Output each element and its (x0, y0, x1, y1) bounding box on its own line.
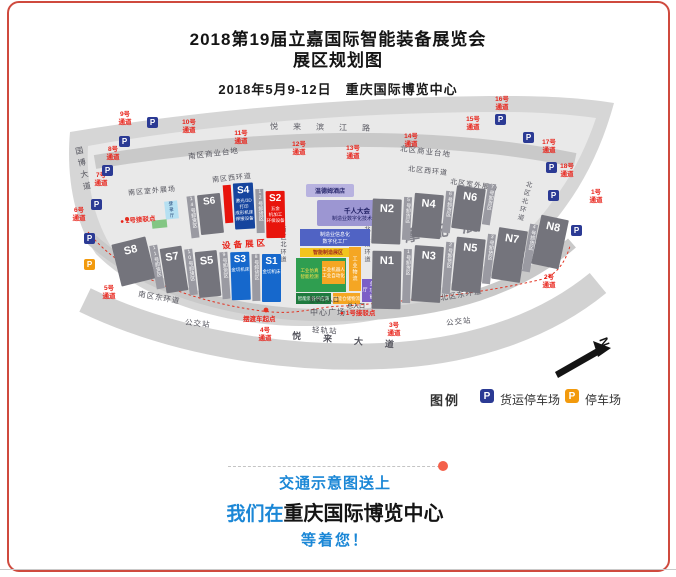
gate-17-label: 17号 通道 (536, 139, 562, 155)
hall-s1: S1金切机床 (262, 254, 281, 302)
gate-5-label: 5号 通道 (96, 285, 122, 301)
gate-2-label: 2号 通道 (536, 274, 562, 290)
central-info-bar: 制造业信息化 数字化工厂 (300, 229, 370, 246)
gate-10-label: 10号 通道 (176, 119, 202, 135)
freight-parking-icon: P (548, 190, 559, 201)
freight-parking-icon: P (523, 132, 534, 143)
wyndham-hotel: 温德姆酒店 (306, 184, 354, 197)
freight-parking-icon: P (546, 162, 557, 173)
light-rail-station-label: 轻轨站 (312, 324, 338, 336)
gate-9-label: 9号 通道 (112, 111, 138, 127)
gate-15-label: 15号 通道 (460, 116, 486, 132)
industry-simulation-box: 工业仿真 智能检测 (299, 263, 320, 284)
hall-n5: N5 (451, 237, 485, 294)
hall-n6: N6 (451, 185, 486, 232)
footer-line2-black: 重庆国际博览中心 (284, 503, 444, 525)
freight-parking-icon: P (91, 199, 102, 210)
smart-zone-band: 智能制造展区 (300, 248, 356, 257)
registration-hall-entrance-label: 登录厅入口 (309, 295, 339, 304)
gate-3-label: 3号 通道 (381, 322, 407, 338)
gate-13-label: 13号 通道 (340, 145, 366, 161)
freight-parking-icon: P (102, 165, 113, 176)
gate-18-label: 18号 通道 (554, 163, 580, 179)
footer-line2: 我们在重庆国际博览中心 (0, 497, 670, 526)
gate-11-label: 11号 通道 (228, 130, 254, 146)
hall-n1: N1 (371, 251, 401, 309)
gate-8-label: 8号 通道 (100, 146, 126, 162)
gate-4-label: 4号 通道 (252, 327, 278, 343)
freight-parking-icon: P (119, 136, 130, 147)
south-registration-hall: 登录厅 (164, 200, 179, 219)
gate-12-label: 12号 通道 (286, 141, 312, 157)
hall-s5: S5 (195, 250, 222, 298)
hall-n2: N2 (371, 199, 402, 245)
hall-n3: N3 (411, 245, 444, 303)
hall-s4: S4激光/3D打印 成形机床 焊接设备 (233, 183, 255, 230)
hall-s3: S3金切机床 (230, 252, 251, 301)
freight-parking-icon: P (495, 114, 506, 125)
footer-line2-blue: 我们在 (226, 504, 283, 525)
footer-line3: 等着您！ (0, 529, 670, 550)
road-yuelai-binjiang: 悦来滨江路 (270, 121, 385, 134)
legend-parking-label: 停车场 (585, 391, 621, 408)
legend-freight-parking-label: 货运停车场 (500, 391, 560, 408)
freight-parking-icon: P (147, 117, 158, 128)
parking-legend-icon: P (565, 389, 579, 403)
compass-arrow-shaft (555, 348, 600, 378)
footer-line1: 交通示意图送上 (0, 472, 670, 493)
shuttle-start-dot (264, 308, 269, 313)
legend-title: 图例 (430, 390, 460, 409)
footer-dashed-divider (228, 466, 440, 467)
shuttle-start-label: 摆渡车起点 (243, 313, 276, 323)
gate-6-label: 6号 通道 (66, 207, 92, 223)
gate-1-label: 1号 通道 (583, 189, 609, 205)
industrial-logistics-strip: 工业物流 (349, 247, 361, 291)
divider-end-dot (438, 461, 448, 471)
parking-icon: P (84, 259, 95, 270)
hall-s6: S6 (197, 193, 224, 235)
freight-parking-icon: P (84, 233, 95, 244)
hall-n4: N4 (411, 193, 444, 239)
hall-s2: S2五金 机加工 环保设备 (266, 191, 286, 238)
shuttle-point-1-label: ● 1号接驳点 (340, 307, 375, 317)
freight-parking-legend-icon: P (480, 389, 494, 403)
unloading-zone-8: 8号卸货区 (252, 254, 261, 301)
industrial-robot-box: 工业机器人 工业自动化 (322, 261, 345, 284)
unloading-zone-12: 12号卸货区 (255, 189, 265, 233)
gate-16-label: 16号 通道 (489, 96, 515, 112)
freight-parking-icon: P (571, 225, 582, 236)
